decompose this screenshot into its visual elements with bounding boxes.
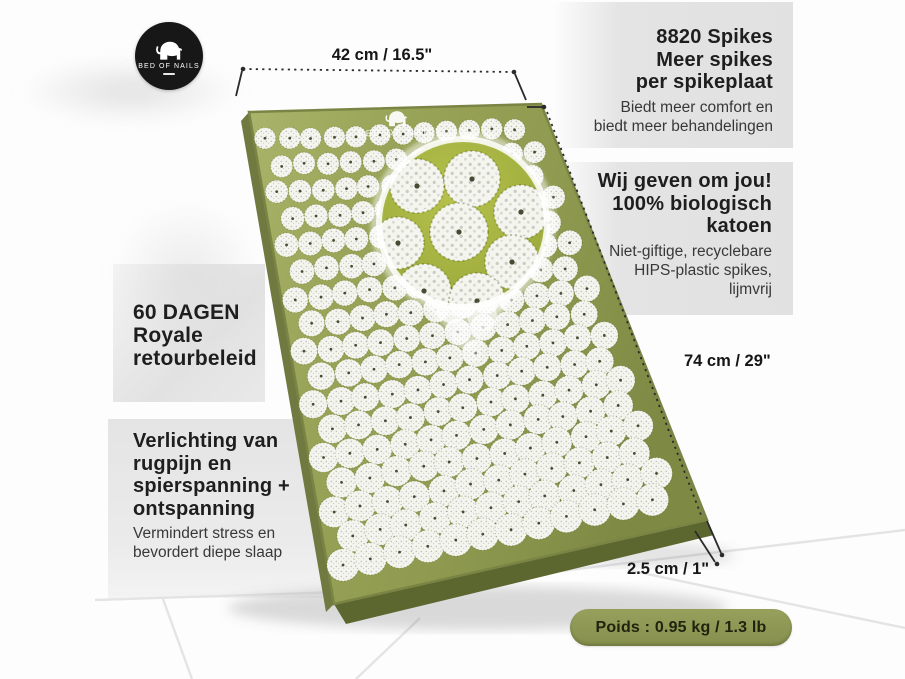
feature-spikes-title: Meer spikes xyxy=(594,49,773,72)
feature-spikes-subtitle: Biedt meer comfort en xyxy=(594,98,773,117)
feature-care-subtitle: Niet-giftige, recyclebare xyxy=(598,242,772,261)
feature-care-title: katoen xyxy=(598,215,772,238)
thickness-dimension-label: 2.5 cm / 1" xyxy=(627,560,709,579)
feature-relief-title: ontspanning xyxy=(133,498,290,521)
feature-care-subtitle: lijmvrij xyxy=(598,280,772,299)
feature-care-title: 100% biologisch xyxy=(598,193,772,216)
brand-logo: BED OF NAILS xyxy=(135,22,203,90)
brand-logo-text: BED OF NAILS xyxy=(138,63,199,70)
feature-returns-title: Royale xyxy=(133,324,257,347)
feature-relief: Verlichting van rugpijn en spierspanning… xyxy=(133,430,290,562)
weight-badge-text: Poids : 0.95 kg / 1.3 lb xyxy=(595,619,766,637)
feature-relief-subtitle: Vermindert stress en xyxy=(133,524,290,543)
feature-care: Wij geven om jou! 100% biologisch katoen… xyxy=(598,170,772,299)
feature-relief-title: Verlichting van xyxy=(133,430,290,453)
feature-spikes: 8820 Spikes Meer spikes per spikeplaat B… xyxy=(594,26,773,136)
feature-spikes-title: per spikeplaat xyxy=(594,71,773,94)
logo-dash xyxy=(163,73,175,75)
feature-returns: 60 DAGEN Royale retourbeleid xyxy=(133,301,257,370)
height-dimension-label: 74 cm / 29" xyxy=(684,352,771,371)
feature-returns-title: 60 DAGEN xyxy=(133,301,257,324)
feature-relief-title: rugpijn en xyxy=(133,453,290,476)
width-dimension-label: 42 cm / 16.5" xyxy=(297,46,467,65)
feature-care-subtitle: HIPS-plastic spikes, xyxy=(598,261,772,280)
feature-relief-title: spierspanning + xyxy=(133,475,290,498)
weight-badge: Poids : 0.95 kg / 1.3 lb xyxy=(570,609,792,646)
product-infographic: BED OF NAILS xyxy=(0,0,905,679)
feature-spikes-title: 8820 Spikes xyxy=(594,26,773,49)
feature-relief-subtitle: bevordert diepe slaap xyxy=(133,543,290,562)
feature-care-title: Wij geven om jou! xyxy=(598,170,772,193)
feature-returns-title: retourbeleid xyxy=(133,347,257,370)
feature-spikes-subtitle: biedt meer behandelingen xyxy=(594,117,773,136)
elephant-icon xyxy=(153,38,185,61)
